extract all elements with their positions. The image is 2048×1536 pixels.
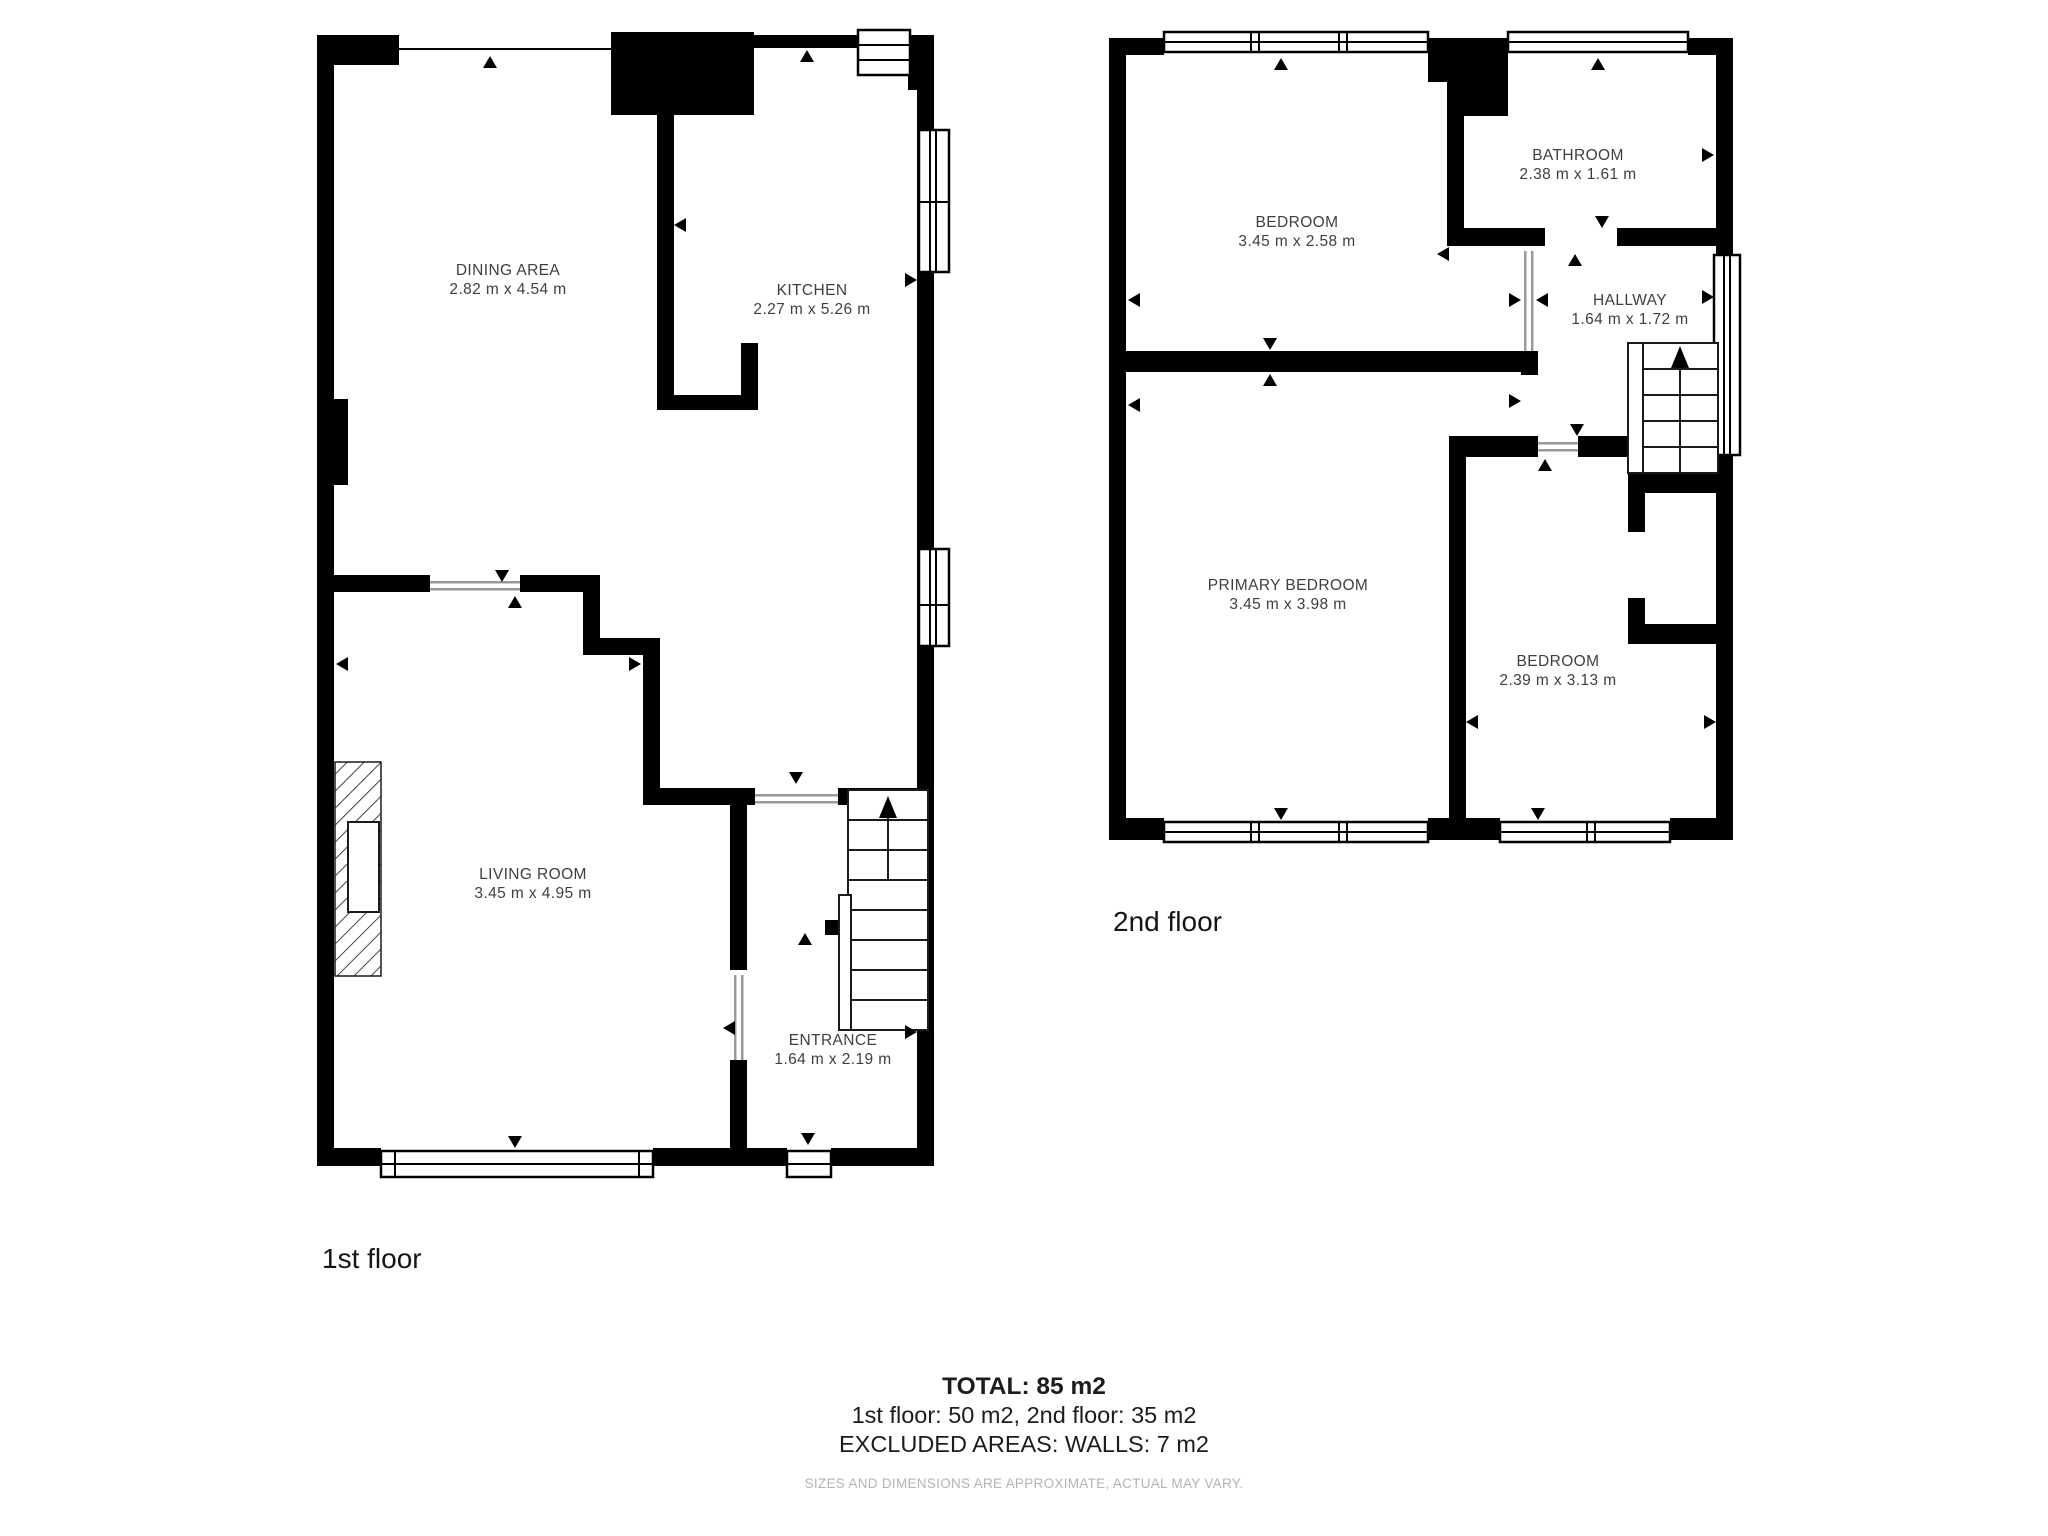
room-label-dining-area: DINING AREA [456,262,561,279]
staircase-second-floor [1628,343,1718,473]
room-dims-entrance: 1.64 m x 2.19 m [774,1051,891,1068]
room-label-hallway: HALLWAY [1593,292,1667,309]
room-label-entrance: ENTRANCE [789,1032,877,1049]
caption-first-floor: 1st floor [322,1243,422,1275]
room-label-kitchen: KITCHEN [777,282,848,299]
total-area-text: TOTAL: 85 m2 [0,1372,2048,1401]
first-floor-plan: DINING AREA 2.82 m x 4.54 m KITCHEN 2.27… [315,30,960,1175]
room-dims-bathroom: 2.38 m x 1.61 m [1519,166,1636,183]
area-summary: TOTAL: 85 m2 1st floor: 50 m2, 2nd floor… [0,1372,2048,1491]
caption-second-floor: 2nd floor [1113,906,1222,938]
room-dims-bedroom-2: 2.39 m x 3.13 m [1499,672,1616,689]
disclaimer-text: SIZES AND DIMENSIONS ARE APPROXIMATE, AC… [0,1476,2048,1491]
room-dims-primary-bedroom: 3.45 m x 3.98 m [1229,596,1346,613]
first-floor-door-markers [336,50,917,1148]
room-dims-kitchen: 2.27 m x 5.26 m [753,301,870,318]
room-dims-living-room: 3.45 m x 4.95 m [474,885,591,902]
staircase-first-floor [839,790,928,1030]
second-floor-plan: BEDROOM 3.45 m x 2.58 m BATHROOM 2.38 m … [1105,32,1750,852]
floorplan-page: DINING AREA 2.82 m x 4.54 m KITCHEN 2.27… [0,0,2048,1536]
room-label-living-room: LIVING ROOM [479,866,587,883]
room-label-bedroom-2: BEDROOM [1517,653,1600,670]
excluded-area-text: EXCLUDED AREAS: WALLS: 7 m2 [0,1430,2048,1459]
room-dims-bedroom-1: 3.45 m x 2.58 m [1238,233,1355,250]
per-floor-area-text: 1st floor: 50 m2, 2nd floor: 35 m2 [0,1401,2048,1430]
room-label-bathroom: BATHROOM [1532,147,1624,164]
room-label-bedroom-1: BEDROOM [1256,214,1339,231]
room-label-primary-bedroom: PRIMARY BEDROOM [1208,577,1368,594]
room-dims-dining-area: 2.82 m x 4.54 m [449,281,566,298]
fireplace-symbol [335,762,381,976]
room-dims-hallway: 1.64 m x 1.72 m [1571,311,1688,328]
